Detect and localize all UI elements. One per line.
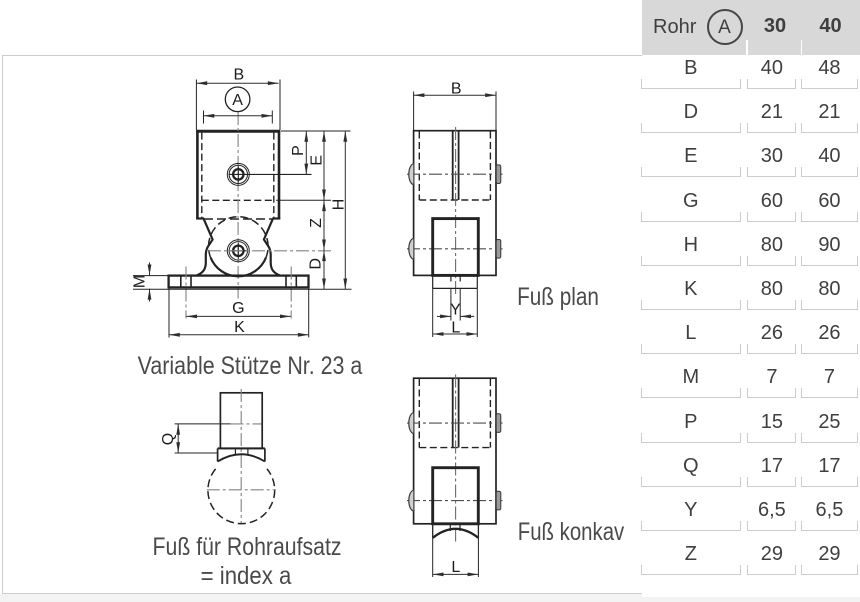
svg-text:H: H: [331, 199, 348, 211]
svg-text:Q: Q: [160, 433, 177, 445]
svg-text:B: B: [451, 81, 462, 98]
svg-text:D: D: [308, 258, 325, 270]
svg-text:M: M: [132, 275, 149, 288]
svg-text:A: A: [232, 92, 243, 109]
svg-text:K: K: [234, 319, 245, 336]
svg-text:P: P: [290, 145, 307, 156]
svg-text:E: E: [309, 155, 326, 166]
svg-text:L: L: [451, 559, 460, 576]
svg-text:Z: Z: [308, 218, 325, 228]
svg-text:B: B: [233, 67, 244, 84]
svg-text:L: L: [451, 320, 460, 337]
svg-text:G: G: [232, 300, 244, 317]
